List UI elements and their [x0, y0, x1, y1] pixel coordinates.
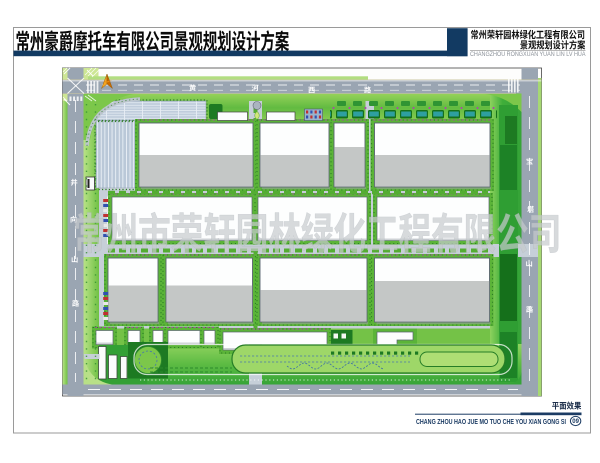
svg-text:CHANG ZHOU HAO JUE MO TUO CHE: CHANG ZHOU HAO JUE MO TUO CHE YOU XIAN G… — [416, 417, 566, 426]
svg-text:CHANGZHOU RONGXUAN YUAN LIN LV: CHANGZHOU RONGXUAN YUAN LIN LV HUA — [470, 52, 586, 58]
svg-text:09: 09 — [572, 419, 579, 425]
